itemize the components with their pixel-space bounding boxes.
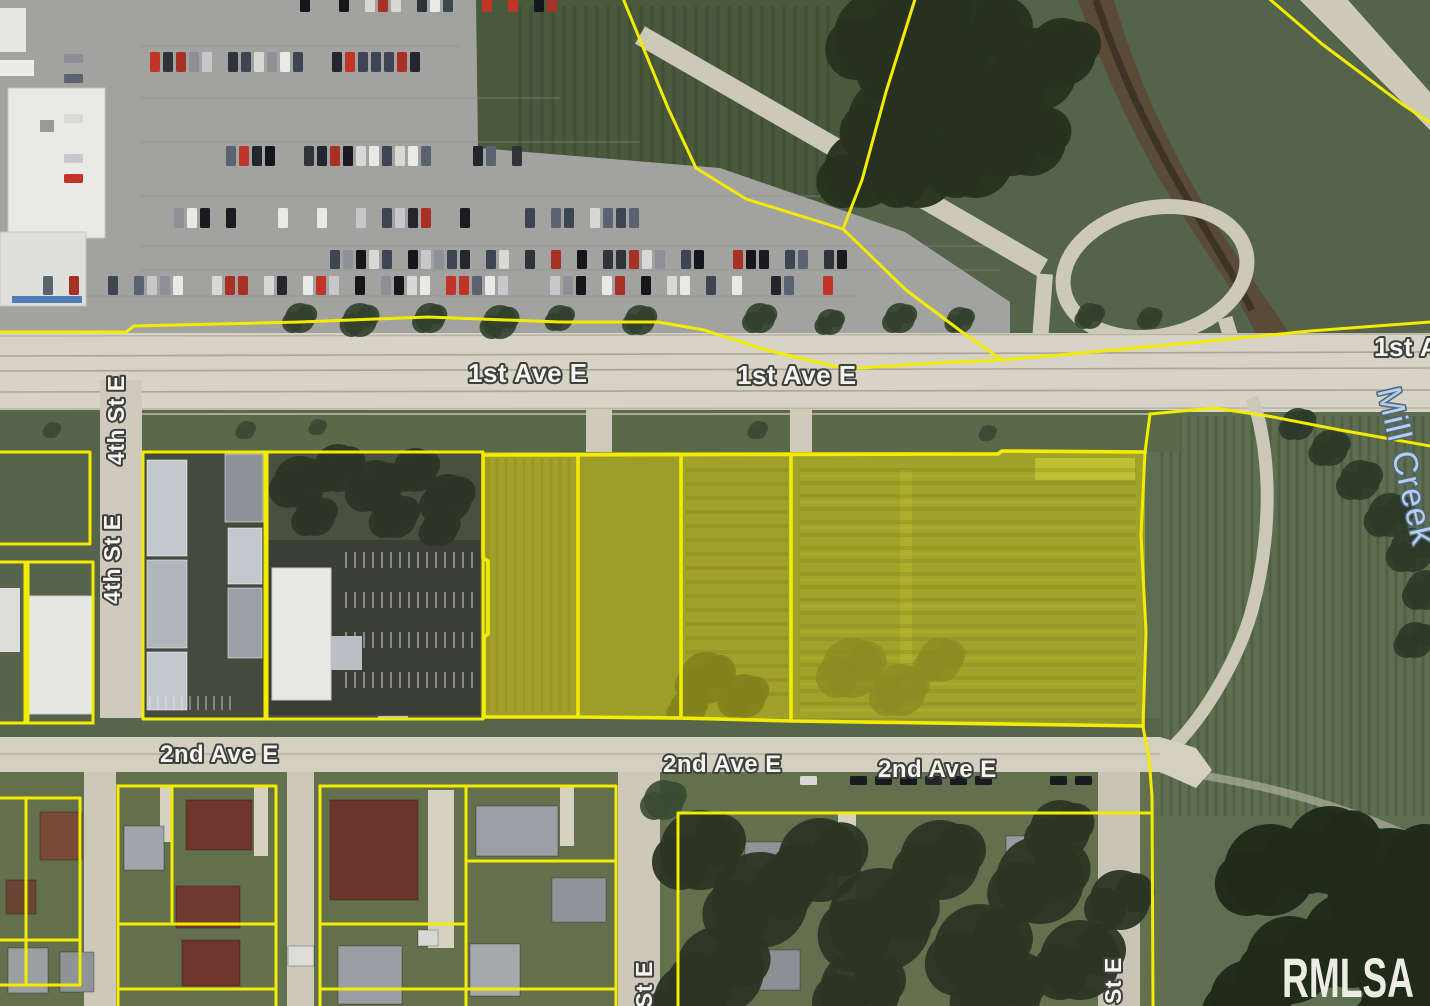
west-building (26, 596, 92, 714)
car (160, 276, 170, 295)
street-label-2nd-ave-left: 2nd Ave E (160, 741, 279, 768)
rmlsa-watermark-logo: RMLSA (1282, 946, 1414, 1006)
house (476, 806, 558, 856)
car (176, 52, 186, 72)
tree (412, 450, 441, 479)
car (355, 276, 365, 295)
street-label-1st-ave-right: 1st Ave E (737, 360, 857, 390)
tree (312, 498, 338, 524)
car (629, 250, 639, 269)
car (459, 276, 469, 295)
car (150, 52, 160, 72)
car (615, 276, 625, 295)
car (706, 276, 716, 295)
mls-map-image[interactable]: 1st Ave E 1st Ave E 1st A 4th St E 4th S… (0, 0, 1430, 1006)
road-1st-ave (0, 333, 1430, 412)
car (1050, 776, 1067, 785)
tree (758, 305, 778, 325)
tree (1357, 462, 1383, 488)
house (40, 812, 82, 860)
car (694, 250, 704, 269)
tree (661, 782, 687, 808)
building-blue-awning (12, 296, 82, 303)
west-building-small (0, 588, 20, 652)
car (300, 0, 310, 12)
car (267, 52, 277, 72)
car (837, 250, 847, 269)
car (382, 146, 392, 166)
car (525, 250, 535, 269)
car (365, 0, 375, 12)
car (408, 146, 418, 166)
car (212, 276, 222, 295)
car (1075, 776, 1092, 785)
tree (245, 422, 257, 434)
car (293, 52, 303, 72)
tree (1148, 308, 1162, 322)
tree (958, 308, 975, 325)
tree (1057, 21, 1101, 65)
car (64, 194, 83, 203)
tree (497, 307, 519, 329)
car (330, 146, 340, 166)
car (173, 276, 183, 295)
car (228, 52, 238, 72)
car (303, 276, 313, 295)
car (800, 776, 817, 785)
car (473, 146, 483, 166)
car (563, 276, 573, 295)
car (434, 250, 444, 269)
car (332, 52, 342, 72)
car (391, 0, 401, 12)
car (482, 0, 492, 12)
car (395, 208, 405, 228)
tree (1116, 873, 1155, 912)
tree (854, 954, 906, 1006)
street-label-1st-ave-edge: 1st A (1374, 332, 1430, 362)
car (280, 52, 290, 72)
car (226, 208, 236, 228)
street-label-1st-ave-left: 1st Ave E (468, 358, 588, 388)
car (277, 276, 287, 295)
car (824, 250, 834, 269)
tree (317, 420, 327, 430)
house (186, 800, 252, 850)
car (369, 146, 379, 166)
house (338, 946, 402, 1004)
car (577, 250, 587, 269)
car (616, 208, 626, 228)
car (134, 276, 144, 295)
car (547, 0, 557, 12)
car (733, 250, 743, 269)
car (564, 208, 574, 228)
car (202, 52, 212, 72)
car (264, 276, 274, 295)
driveway-stub (790, 410, 812, 452)
car (304, 146, 314, 166)
car (850, 776, 867, 785)
car (576, 276, 586, 295)
car (174, 208, 184, 228)
car (534, 0, 544, 12)
car (771, 276, 781, 295)
car (254, 52, 264, 72)
car (356, 208, 366, 228)
car (278, 208, 288, 228)
car (550, 276, 560, 295)
car (69, 276, 79, 295)
car (784, 276, 794, 295)
car (147, 276, 157, 295)
car (200, 208, 210, 228)
house (330, 800, 418, 900)
car (225, 276, 235, 295)
car (356, 146, 366, 166)
trailer (0, 60, 34, 76)
car (329, 276, 339, 295)
tree (1327, 432, 1350, 455)
car (485, 276, 495, 295)
car (602, 276, 612, 295)
tree (357, 305, 379, 327)
car (460, 208, 470, 228)
car (345, 52, 355, 72)
car (508, 0, 518, 12)
rooftop-unit (40, 120, 54, 132)
car (43, 276, 53, 295)
car (732, 276, 742, 295)
car (241, 52, 251, 72)
car (408, 250, 418, 269)
tree (437, 512, 460, 535)
tree (1025, 108, 1072, 155)
house (288, 946, 314, 966)
tree (1056, 803, 1095, 842)
car (384, 52, 394, 72)
car (746, 250, 756, 269)
car (681, 250, 691, 269)
tree (444, 476, 475, 507)
street-label-4th-st-lower: 4th St E (99, 514, 125, 604)
car (252, 146, 262, 166)
car (378, 0, 388, 12)
car (108, 276, 118, 295)
car (603, 250, 613, 269)
car (343, 250, 353, 269)
car (317, 208, 327, 228)
street-label-2nd-ave-right: 2nd Ave E (878, 756, 997, 783)
car (551, 208, 561, 228)
car (382, 250, 392, 269)
car (64, 74, 83, 83)
car (447, 250, 457, 269)
car (356, 250, 366, 269)
car (330, 250, 340, 269)
commercial-building-annex (331, 636, 362, 670)
car (430, 0, 440, 12)
car (443, 0, 453, 12)
tree (51, 423, 61, 433)
car (397, 52, 407, 72)
car (590, 208, 600, 228)
car (163, 52, 173, 72)
car (421, 250, 431, 269)
highlighted-parcel-overlay (483, 452, 1145, 727)
tree (934, 824, 986, 876)
street-label-st-e-center: St E (631, 961, 657, 1006)
tree (994, 952, 1049, 1006)
car (498, 276, 508, 295)
car (421, 208, 431, 228)
driveway-stub (586, 410, 612, 452)
car (316, 276, 326, 295)
house (124, 826, 164, 870)
car (394, 276, 404, 295)
building-main (8, 88, 105, 238)
house (176, 886, 240, 928)
car (785, 250, 795, 269)
car (823, 276, 833, 295)
street-label-2nd-ave-mid: 2nd Ave E (663, 751, 782, 778)
car (238, 276, 248, 295)
map-canvas[interactable]: 1st Ave E 1st Ave E 1st A 4th St E 4th S… (0, 0, 1430, 1006)
car (759, 250, 769, 269)
car (616, 250, 626, 269)
car (499, 250, 509, 269)
house (6, 880, 36, 914)
car (395, 146, 405, 166)
car (317, 146, 327, 166)
car (641, 276, 651, 295)
car (446, 276, 456, 295)
tree (392, 496, 421, 525)
house (182, 940, 240, 986)
car (187, 208, 197, 228)
car (64, 174, 83, 183)
tree (428, 305, 448, 325)
car (189, 52, 199, 72)
tree (828, 310, 845, 327)
car (343, 146, 353, 166)
car (371, 52, 381, 72)
car (64, 54, 83, 63)
trailer (0, 8, 26, 52)
car (472, 276, 482, 295)
car (525, 208, 535, 228)
tree (987, 426, 997, 436)
car (629, 208, 639, 228)
car (667, 276, 677, 295)
car (798, 250, 808, 269)
commercial-building (272, 568, 331, 700)
house (552, 878, 606, 922)
car (655, 250, 665, 269)
car (408, 208, 418, 228)
tree (898, 305, 918, 325)
car (265, 146, 275, 166)
house (418, 930, 438, 946)
car (603, 208, 613, 228)
car (420, 276, 430, 295)
tree (1296, 410, 1317, 431)
car (407, 276, 417, 295)
car (64, 154, 83, 163)
tree (899, 26, 951, 78)
street-label-st-e-right: St E (1100, 957, 1126, 1004)
car (239, 146, 249, 166)
car (358, 52, 368, 72)
car (410, 52, 420, 72)
car (64, 114, 83, 123)
car (417, 0, 427, 12)
car (642, 250, 652, 269)
car (680, 276, 690, 295)
car (382, 208, 392, 228)
car (369, 250, 379, 269)
car (421, 146, 431, 166)
tree (1088, 304, 1105, 321)
car (339, 0, 349, 12)
car (381, 276, 391, 295)
car (460, 250, 470, 269)
tree (757, 422, 769, 434)
car (512, 146, 522, 166)
road-residential-2 (287, 772, 314, 1006)
tree (814, 822, 869, 877)
car (226, 146, 236, 166)
car (486, 250, 496, 269)
car (486, 146, 496, 166)
street-label-4th-st-upper: 4th St E (103, 375, 129, 465)
car (551, 250, 561, 269)
